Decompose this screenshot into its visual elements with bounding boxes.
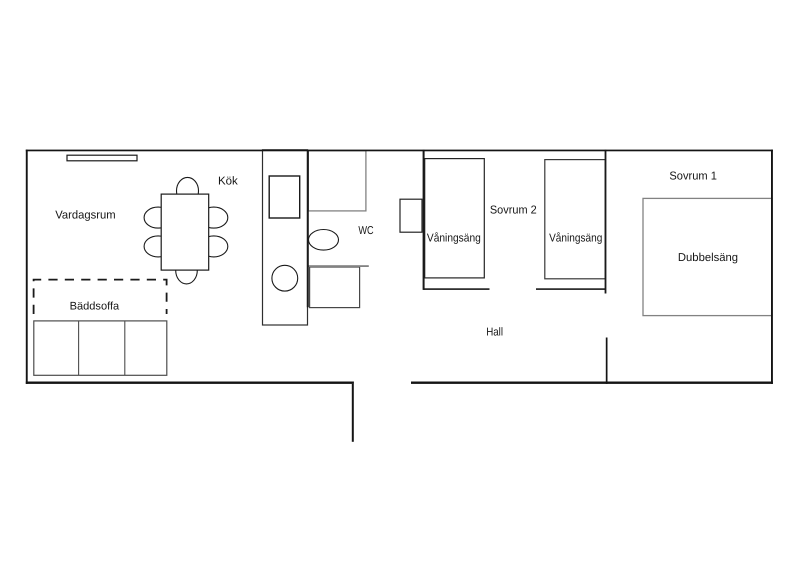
- svg-text:Kök: Kök: [218, 176, 238, 188]
- svg-text:Sovrum 2: Sovrum 2: [490, 205, 537, 217]
- svg-text:Våningsäng: Våningsäng: [549, 232, 602, 245]
- svg-text:WC: WC: [358, 225, 373, 237]
- svg-text:Våningsäng: Våningsäng: [427, 232, 481, 245]
- svg-text:Vardagsrum: Vardagsrum: [55, 210, 115, 222]
- svg-text:Sovrum 1: Sovrum 1: [669, 171, 717, 183]
- svg-text:Bäddsoffa: Bäddsoffa: [70, 300, 120, 312]
- svg-text:Hall: Hall: [486, 327, 503, 339]
- svg-text:Dubbelsäng: Dubbelsäng: [678, 252, 738, 264]
